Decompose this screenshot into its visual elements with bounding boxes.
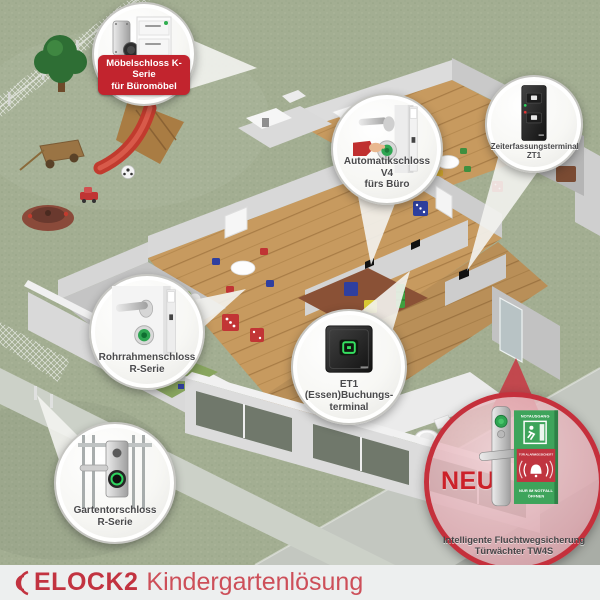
callout-label: Intelligente Fluchtwegsicherung Türwächt… <box>436 535 592 558</box>
door-surface <box>112 286 165 356</box>
callout-label: Zeiterfassungsterminal ZT1 <box>491 142 578 161</box>
et1-product-image <box>293 322 405 378</box>
callout-label: Automatikschloss V4 fürs Büro <box>337 156 436 191</box>
callout-rohrrahmenschloss: Rohrrahmenschloss R-Serie <box>89 274 205 390</box>
svg-text:TÜR ALARMGESICHERT: TÜR ALARMGESICHERT <box>519 452 554 456</box>
zt1-product-image <box>487 84 581 142</box>
exit-sign: NOTAUSGANG TÜR ALARMGESICHERT <box>514 410 558 504</box>
callout-gartentorschloss: Gartentorschloss R-Serie <box>54 422 176 544</box>
gate-handle-icon <box>80 465 108 471</box>
callout-automatikschloss: Automatikschloss V4 fürs Büro <box>331 93 443 205</box>
red-led-icon <box>524 110 527 113</box>
footer-bar: ELOCK2 Kindergartenlösung <box>0 565 600 600</box>
gartentorschloss-product-image <box>56 435 174 509</box>
lever-handle-icon <box>479 449 520 461</box>
callout-label: ET1 (Essen)Buchungs- terminal <box>297 379 400 414</box>
rohrrahmenschloss-product-image <box>91 286 203 356</box>
callout-label: Gartentorschloss R-Serie <box>61 505 170 529</box>
green-led-ring-icon <box>112 473 123 484</box>
door-handle-icon <box>358 117 387 126</box>
kindergarten-infographic: Möbelschloss K-Serie für Büromöbel <box>0 0 600 600</box>
elock2-logo-mark-icon <box>10 568 32 598</box>
svg-text:ÖFFNEN: ÖFFNEN <box>528 494 545 499</box>
brand-logo-text: ELOCK2 <box>34 568 138 597</box>
green-led-icon <box>164 21 168 25</box>
svg-text:NOTAUSGANG: NOTAUSGANG <box>521 414 550 419</box>
tw4s-product-image: NOTAUSGANG TÜR ALARMGESICHERT <box>479 403 571 520</box>
green-led-icon <box>524 104 527 107</box>
product-line-title: Kindergartenlösung <box>146 568 363 597</box>
moebelschloss-badge: Möbelschloss K-Serie für Büromöbel <box>98 55 190 95</box>
callout-et1: ET1 (Essen)Buchungs- terminal <box>291 309 407 425</box>
callout-label: Rohrrahmenschloss R-Serie <box>95 352 198 376</box>
callout-zeiterfassungsterminal: Zeiterfassungsterminal ZT1 <box>485 75 583 173</box>
callout-tuerwaechter-tw4s: NEU NOTAUSGANG <box>424 392 600 572</box>
callout-moebelschloss: Möbelschloss K-Serie für Büromöbel <box>92 2 196 106</box>
svg-text:NUR IM NOTFALL: NUR IM NOTFALL <box>519 488 553 493</box>
callout-label: Möbelschloss K-Serie für Büromöbel <box>98 55 190 95</box>
